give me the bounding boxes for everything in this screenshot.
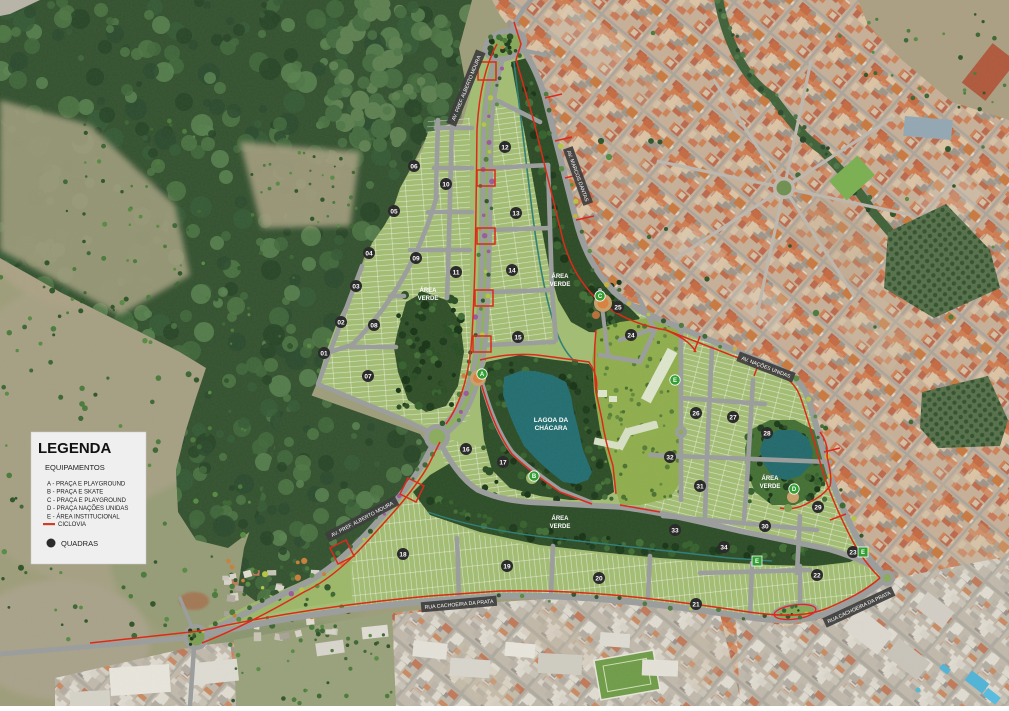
svg-text:C - PRAÇA E PLAYGROUND: C - PRAÇA E PLAYGROUND bbox=[47, 498, 127, 504]
svg-text:LEGENDA: LEGENDA bbox=[38, 440, 112, 457]
svg-text:QUADRAS: QUADRAS bbox=[61, 539, 98, 548]
svg-text:EQUIPAMENTOS: EQUIPAMENTOS bbox=[45, 463, 105, 472]
svg-text:B - PRAÇA E SKATE: B - PRAÇA E SKATE bbox=[47, 490, 103, 496]
svg-text:A - PRAÇA E PLAYGROUND: A - PRAÇA E PLAYGROUND bbox=[47, 482, 126, 488]
svg-text:CICLOVIA: CICLOVIA bbox=[58, 522, 86, 528]
svg-text:E - ÁREA INSTITUCIONAL: E - ÁREA INSTITUCIONAL bbox=[47, 513, 120, 520]
svg-text:D - PRAÇA NAÇÕES UNIDAS: D - PRAÇA NAÇÕES UNIDAS bbox=[47, 505, 128, 512]
